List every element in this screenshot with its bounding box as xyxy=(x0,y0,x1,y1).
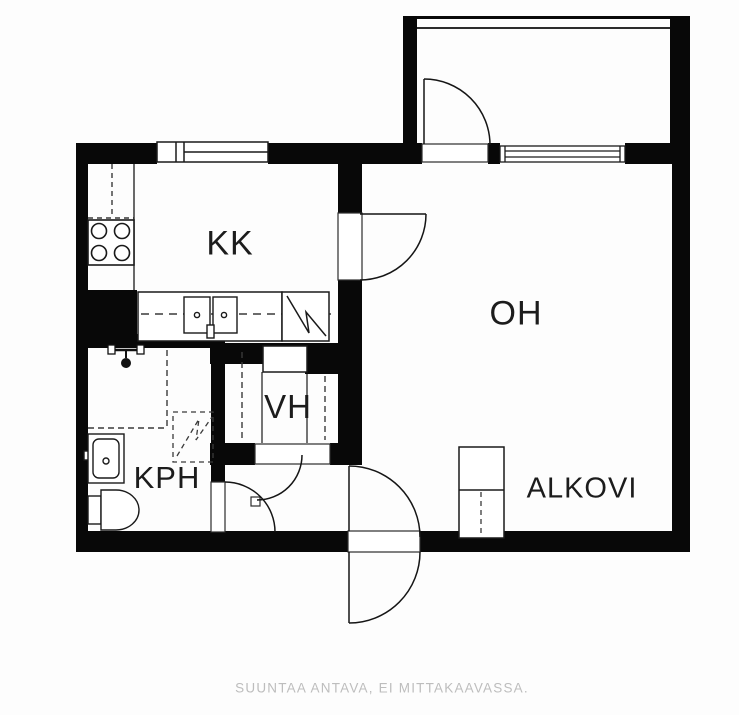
balcony-door-threshold xyxy=(422,144,488,162)
entrance-door-arc-inner xyxy=(349,466,420,537)
entrance-door-threshold xyxy=(348,531,420,552)
vh-door-threshold xyxy=(255,444,330,464)
kitchen-window-icon xyxy=(157,142,268,162)
sink-faucet-icon xyxy=(207,325,214,338)
vh-cabinet-icon xyxy=(263,346,307,372)
toilet-icon xyxy=(88,490,139,530)
shower-mixer-icon xyxy=(108,345,144,368)
kk-oh-door-threshold xyxy=(338,213,362,280)
room-label-kph: KPH xyxy=(134,460,201,496)
stove-icon xyxy=(88,220,134,265)
floor-plan: KK OH VH KPH ALKOVI SUUNTAA ANTAVA, EI M… xyxy=(0,0,739,715)
entrance-door-arc-outer xyxy=(349,552,420,623)
kph-door-leaf xyxy=(211,482,225,532)
alkovi-wardrobe-icon xyxy=(459,447,504,538)
balcony-door-arc xyxy=(424,79,490,145)
kph-door-arc xyxy=(225,482,275,532)
fridge-reservation-icon xyxy=(88,164,134,218)
balcony-window-icon xyxy=(500,146,625,162)
dishwasher-reservation-icon xyxy=(282,292,329,341)
disclaimer-caption: SUUNTAA ANTAVA, EI MITTAKAAVASSA. xyxy=(235,681,529,696)
room-label-oh: OH xyxy=(490,295,543,334)
room-label-alkovi: ALKOVI xyxy=(527,473,638,506)
washer-reservation-icon xyxy=(173,412,213,462)
vh-door-leaf-end xyxy=(251,497,260,506)
kk-oh-door-arc xyxy=(360,214,426,280)
room-label-vh: VH xyxy=(264,388,312,426)
room-label-kk: KK xyxy=(206,225,253,264)
double-sink-icon xyxy=(184,297,237,338)
plan-linework xyxy=(0,0,739,715)
washbasin-icon xyxy=(84,434,124,483)
